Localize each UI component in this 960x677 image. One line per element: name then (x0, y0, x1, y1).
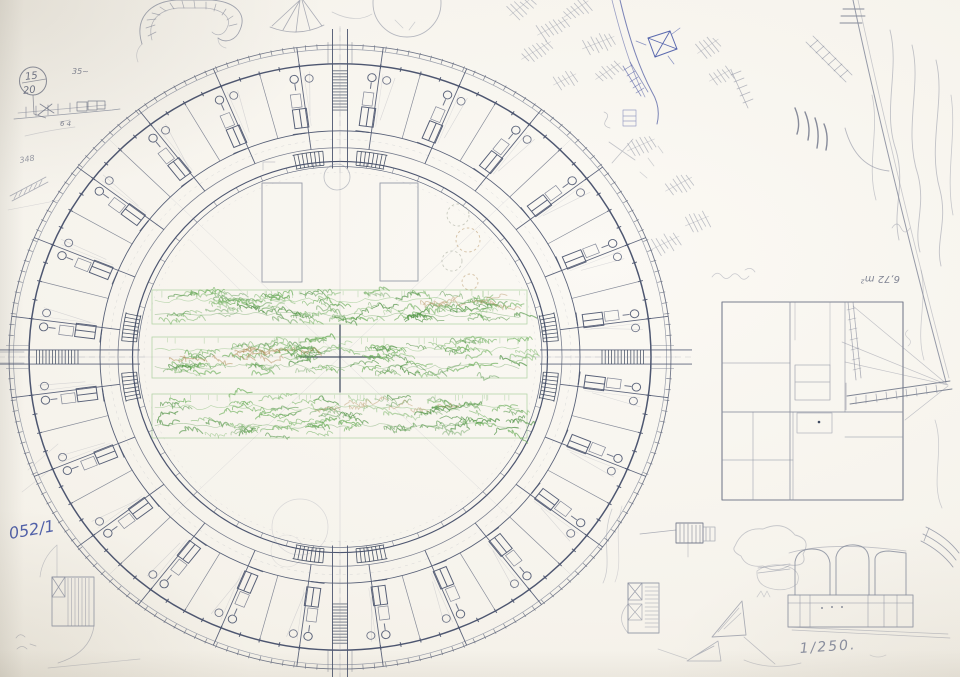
architectural-sketch: 15 20 35~ 6 4 348 052/1 6,72 m² 1/250. (0, 0, 960, 677)
circled-note-top: 15 (25, 71, 39, 83)
left-scribble: 348 (19, 153, 36, 165)
measure-note: 35~ (72, 67, 89, 76)
circled-note-bottom: 20 (23, 85, 37, 97)
area-label: 6,72 m² (861, 273, 900, 284)
scale-label: 1/250. (799, 637, 857, 657)
sketch-sheet: 15 20 35~ 6 4 348 052/1 6,72 m² 1/250. (0, 0, 960, 677)
courtyard-greenery (152, 287, 539, 443)
circular-plan (0, 22, 695, 677)
annotation-texts: 15 20 35~ 6 4 348 052/1 6,72 m² 1/250. (7, 67, 900, 657)
perimeter-sketches (0, 0, 959, 668)
section-dim: 6 4 (60, 120, 71, 128)
sheet-code: 052/1 (7, 516, 56, 543)
